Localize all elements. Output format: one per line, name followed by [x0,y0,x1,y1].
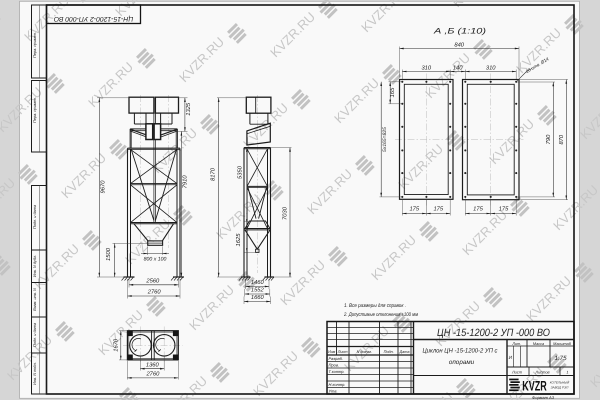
svg-text:KVZR.RU: KVZR.RU [577,91,600,142]
svg-text:1:75: 1:75 [554,355,567,362]
svg-text:Масса: Масса [533,342,544,346]
svg-text:870: 870 [558,134,565,144]
svg-text:310: 310 [486,64,496,71]
svg-text:5350: 5350 [236,165,243,179]
svg-text:KVZR.RU: KVZR.RU [587,339,600,390]
svg-text:1. Все размеры для справок .: 1. Все размеры для справок . [344,303,406,309]
svg-text:175: 175 [473,206,483,212]
svg-text:2. Допустимые отклонения ±1: 2. Допустимые отклонения ±100 мм [343,312,418,318]
svg-text:KVZR: KVZR [522,378,547,393]
svg-text:Подп. и дата: Подп. и дата [32,204,37,229]
svg-text:1: 1 [566,369,568,374]
svg-text:Лит.: Лит. [511,342,521,346]
svg-text:Изм: Изм [328,350,335,354]
svg-text:790: 790 [545,134,552,144]
svg-text:1325: 1325 [185,102,192,116]
svg-text:2560: 2560 [145,278,160,285]
svg-text:Н.контр.: Н.контр. [329,382,346,387]
svg-text:1500: 1500 [105,247,112,261]
svg-text:Взам. инв. N: Взам. инв. N [32,288,37,311]
svg-text:800 х 100: 800 х 100 [144,257,167,263]
svg-text:ЦН -15-1200-2 УП -000 ВО: ЦН -15-1200-2 УП -000 ВО [437,327,550,339]
svg-text:175: 175 [499,206,509,212]
svg-text:2760: 2760 [145,371,160,378]
svg-text:7910: 7910 [181,175,188,189]
svg-text:Инв. N дубл.: Инв. N дубл. [32,255,37,278]
svg-text:Пров.: Пров. [329,363,340,368]
svg-text:5х165=825: 5х165=825 [382,127,388,152]
svg-text:Лист: Лист [511,369,523,374]
svg-text:310: 310 [421,64,431,71]
svg-text:8170: 8170 [210,167,217,181]
svg-text:KVZR.RU: KVZR.RU [0,175,18,226]
svg-text:840: 840 [454,41,464,48]
svg-text:КОТЕЛЬНЫЙ: КОТЕЛЬНЫЙ [550,381,570,385]
svg-text:Перв. примен.: Перв. примен. [32,97,37,123]
svg-text:165: 165 [389,87,396,97]
svg-text:1460: 1460 [251,279,265,286]
svg-text:Инв. N подл.: Инв. N подл. [32,362,37,385]
svg-text:9670: 9670 [99,180,106,194]
svg-text:Лист: Лист [337,350,348,354]
svg-text:ЗАВОД РЭП: ЗАВОД РЭП [551,386,570,390]
svg-text:А ,Б (1:10): А ,Б (1:10) [433,27,487,36]
svg-text:Масштаб: Масштаб [553,342,572,346]
svg-text:Подп. и дата: Подп. и дата [32,322,37,347]
svg-text:Разраб.: Разраб. [329,356,343,361]
svg-text:Формат А3: Формат А3 [532,395,555,400]
svg-text:1670: 1670 [112,338,119,352]
svg-text:Перв. примен.: Перв. примен. [32,32,37,58]
svg-text:1625: 1625 [235,233,242,247]
svg-text:Подп.: Подп. [384,350,394,354]
svg-text:175: 175 [409,206,419,212]
svg-text:N докум.: N докум. [357,350,372,354]
svg-text:175: 175 [433,206,443,212]
svg-text:1360: 1360 [146,361,160,368]
svg-text:ЦН-15-1200-2 УП-000 ВО: ЦН-15-1200-2 УП-000 ВО [53,15,133,22]
svg-text:140: 140 [453,64,463,71]
svg-text:Дата: Дата [398,350,409,354]
svg-text:Листов: Листов [534,369,549,374]
svg-text:Т.контр.: Т.контр. [329,369,345,374]
svg-text:1552: 1552 [251,287,265,294]
svg-text:7030: 7030 [281,206,288,220]
svg-text:2760: 2760 [147,289,162,296]
svg-text:Циклон ЦН -15-1200-2 УП с: Циклон ЦН -15-1200-2 УП с [423,348,499,355]
svg-text:опорами: опорами [449,359,475,366]
svg-text:1660: 1660 [251,294,265,301]
svg-text:Утв.: Утв. [329,389,338,394]
